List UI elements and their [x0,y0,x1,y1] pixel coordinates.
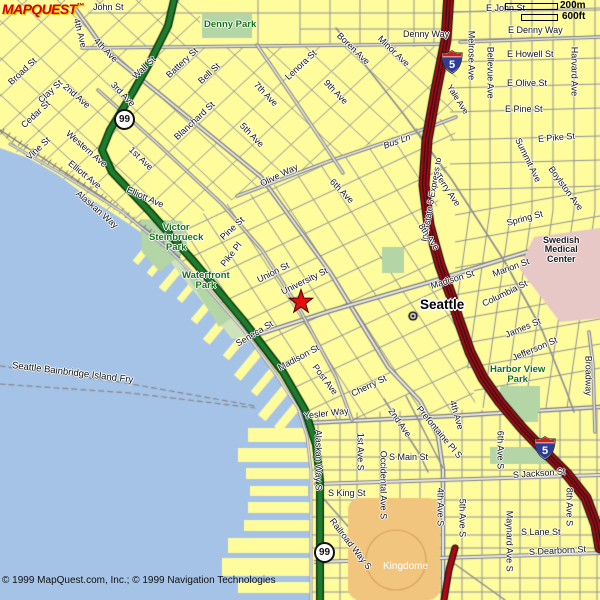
street-label: Marion St [491,257,530,279]
street-label: 9th Ave [322,78,350,106]
city-label: Seattle [420,298,464,312]
street-label: E Pine St [505,105,543,114]
street-label: Blanchard St [173,100,217,142]
street-label: S Main St [389,453,428,462]
street-label: Cherry St [350,374,388,399]
street-label: Cedar St [20,99,52,130]
interstate-5-shield: 5 [441,50,463,74]
map-scale: 200m 600ft [500,0,600,26]
street-label: John St [93,3,124,12]
street-label: Battery St [165,46,200,80]
scale-bar-imperial [521,14,558,21]
street-label: E Denny Way [508,26,563,35]
street-label: Union St [256,261,291,285]
street-label: Yesler Way [303,407,349,422]
street-label: 4th Ave [92,36,120,64]
copyright-text: © 1999 MapQuest.com, Inc.; © 1999 Naviga… [2,575,276,586]
park-label: Waterfront Park [182,271,230,291]
park-label: Denny Park [204,20,256,30]
street-label: Bell St [197,62,222,87]
street-label: Pike Pl [219,241,244,269]
park-label: Harbor View Park [490,365,545,385]
street-label: 7th Ave [252,80,280,108]
street-label: Alaskan Way [74,189,120,230]
street-label: Boren Ave [335,31,371,67]
interstate-number: 5 [449,59,455,71]
street-label: 5th Ave [238,121,266,149]
street-label: Olive Way [259,163,300,189]
street-label: Maynard Ave S [504,511,513,572]
route-number: 99 [319,547,330,558]
stadium-label: Kingdome [383,562,428,573]
street-label: S Jackson St [513,467,566,480]
street-label: Minor Ave [376,34,411,68]
street-label: Columbia St [481,279,529,309]
interstate-5-shield: 5 [534,436,556,460]
street-label: E Howell St [507,50,554,59]
street-label: Elliott Ave [125,185,165,210]
street-label: Jefferson St [511,336,559,363]
street-label: 4th Ave S [435,488,444,526]
street-label: 6th Ave [328,177,356,205]
route-99-shield: 99 [114,109,135,130]
destination-star-marker [288,288,314,314]
street-label: S Lane St [521,528,561,537]
street-label: 1st Ave [127,145,155,172]
street-label: Denny Way [403,30,449,39]
street-label: 2nd Ave [61,82,92,110]
street-label: Post Ave [310,363,339,397]
street-label: 4th Ave [447,399,464,430]
street-label: Boylston Ave [546,165,584,213]
mapquest-logo[interactable]: MAPQUEST™ [2,1,84,17]
street-label: Pine St [219,216,247,243]
route-99-shield: 99 [314,542,335,563]
street-label: Seneca St [235,319,275,348]
street-label: 3rd Ave [109,80,137,108]
street-label: 1st Ave S [355,433,364,471]
street-label: S Dearborn St [529,545,586,557]
street-label: 2nd Ave [386,407,412,439]
street-label: Railroad Way S [327,517,373,572]
street-label: Broadway [583,356,592,396]
street-label: Spring St [506,210,544,229]
interstate-number: 5 [542,445,548,457]
street-label: Lenora St [284,49,319,83]
street-label: Alaskan Way S [313,430,322,491]
street-label: 5th Ave S [457,499,466,537]
street-label: Vine St [25,136,53,163]
street-label: Madison St [430,269,476,291]
street-label: Harvard Ave [569,47,578,96]
scale-bar-metric [505,3,558,10]
mapquest-logo-tm: ™ [77,1,84,10]
park-label: Victor Steinbrueck Park [149,223,203,253]
street-label: Yale Ave [445,83,470,116]
scale-metric-label: 200m [560,0,586,11]
street-label: Wall St [131,55,158,81]
scale-imperial-label: 600ft [562,11,585,22]
street-label: James St [504,317,542,340]
street-label: Occidental Ave S [378,451,387,519]
route-number: 99 [119,114,130,125]
street-label: Broad St [7,56,39,87]
street-label: 8th Ave S [564,488,573,526]
street-label: E Pike St [538,132,576,145]
street-label: 6th Ave S [495,431,504,469]
ferry-route-label: Seattle Bainbridge Island Fry [11,361,133,386]
street-label: E Olive St [507,79,547,88]
mapquest-logo-text: MAPQUEST [2,1,77,17]
facility-label: Swedish Medical Center [543,236,580,264]
map-viewport: John StE John StDenny ParkDenny WayE Den… [0,0,600,600]
street-label: Melrose Ave [466,31,475,80]
street-label: Bus Ln [382,133,412,151]
street-label: Bellevue Ave [485,47,494,99]
street-label: S King St [328,489,366,498]
street-label: 4th Ave [71,18,87,49]
